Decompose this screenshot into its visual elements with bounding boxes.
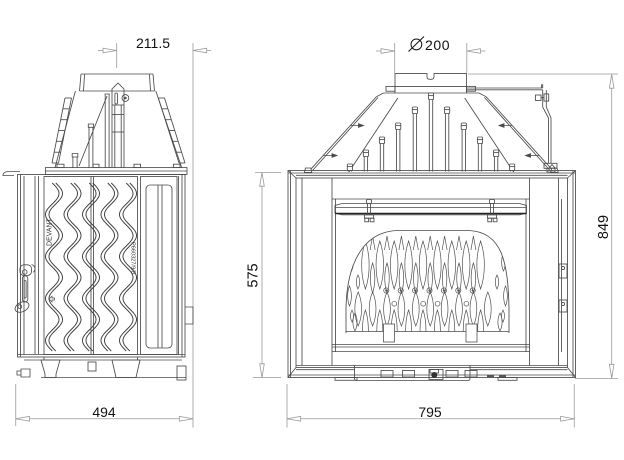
svg-text:849: 849 [596,215,612,239]
svg-text:494: 494 [92,404,116,420]
svg-text:200: 200 [425,37,450,53]
svg-text:211.5: 211.5 [136,35,170,51]
svg-text:P660327/9/B: P660327/9/B [130,242,136,275]
svg-text:DEVANT: DEVANT [47,217,54,246]
svg-text:795: 795 [418,404,442,420]
svg-text:575: 575 [246,263,262,287]
